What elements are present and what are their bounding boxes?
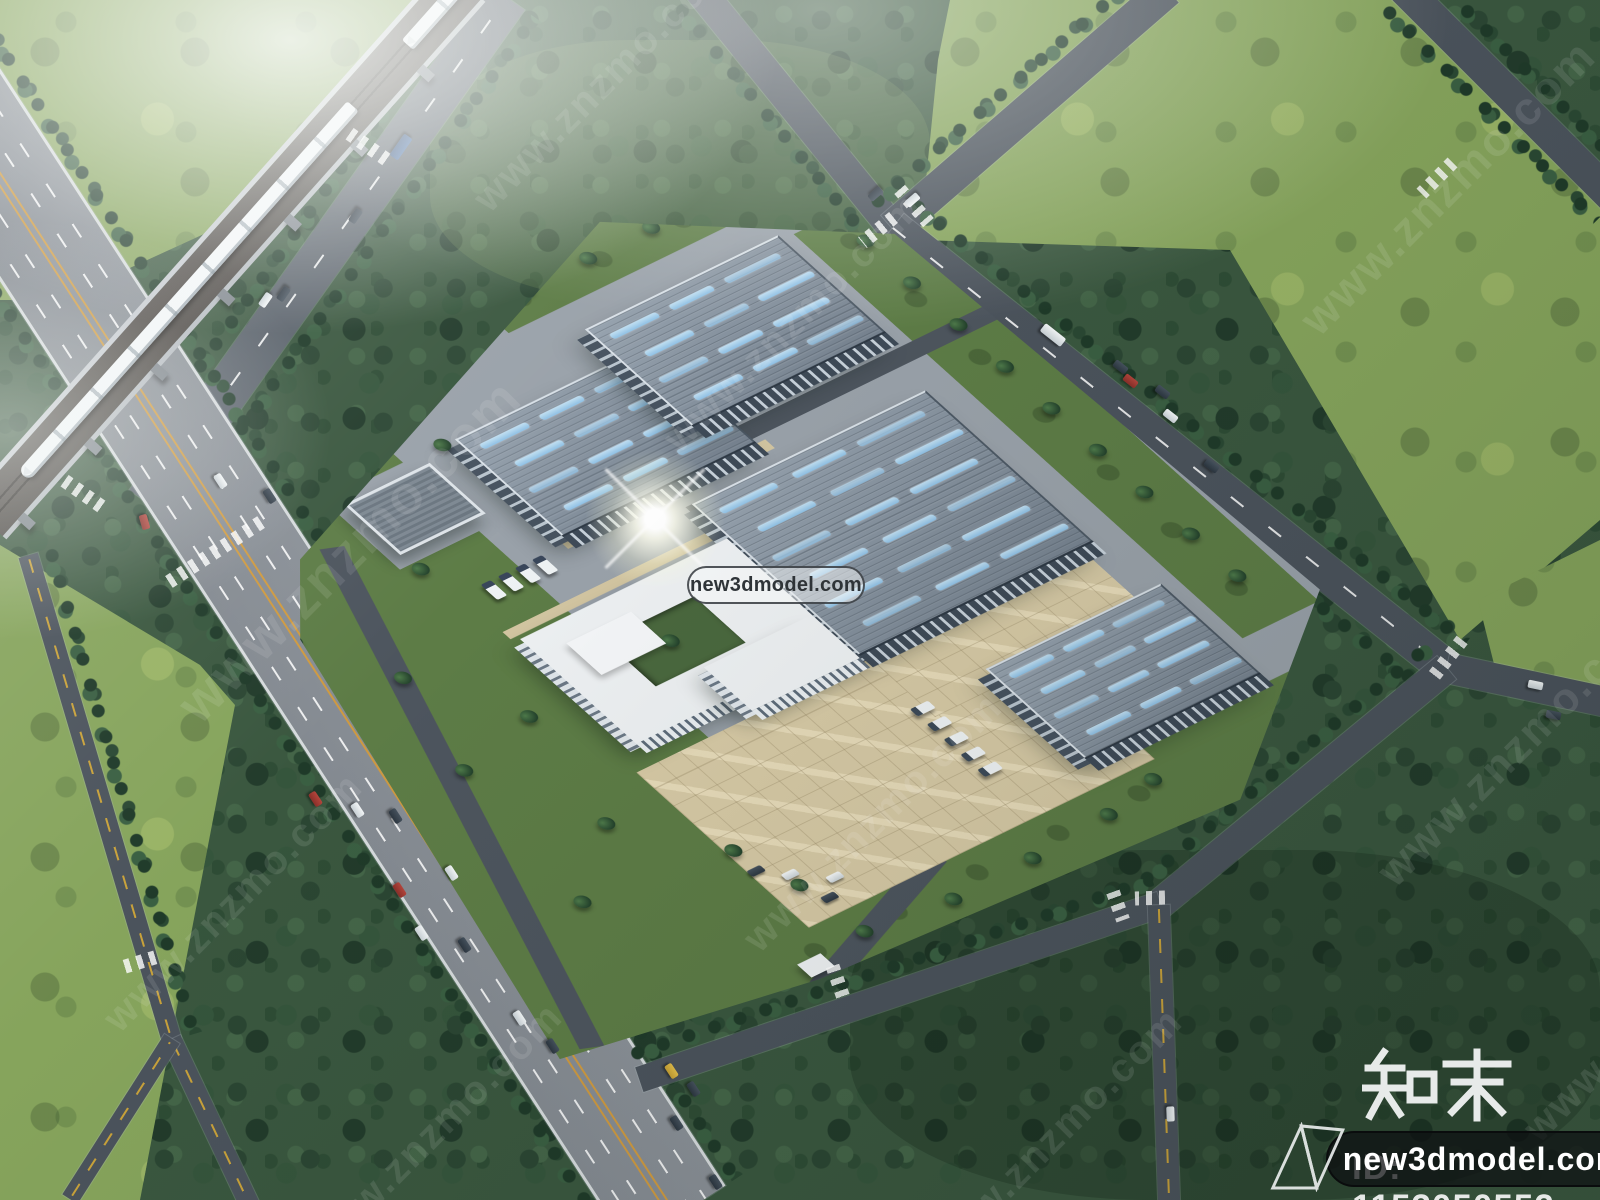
tiled-watermark-text: www.znzmo.com bbox=[165, 367, 533, 735]
tiled-watermark-text: www.znzmo.com bbox=[295, 994, 572, 1200]
tiled-watermark-text: www.znzmo.com bbox=[465, 0, 742, 221]
footer-site-badge: new3dmodel.com bbox=[1326, 1131, 1600, 1187]
tiled-watermark-text: www.znzmo.com bbox=[1515, 874, 1600, 1151]
znzmo-brand-logo bbox=[1362, 1046, 1512, 1126]
tiled-watermark-text: www.znzmo.com bbox=[95, 764, 372, 1041]
footer-site-text: new3dmodel.com bbox=[1343, 1141, 1600, 1178]
tiled-watermark-text: www.znzmo.com bbox=[735, 684, 1012, 961]
tiled-watermark-text: www.znzmo.com bbox=[655, 184, 932, 461]
center-watermark-badge: new3dmodel.com bbox=[687, 566, 865, 604]
center-watermark-text: new3dmodel.com bbox=[690, 574, 862, 597]
tiled-watermark-text: www.znzmo.com bbox=[1368, 593, 1600, 896]
tiled-watermark-text: www.znzmo.com bbox=[915, 999, 1192, 1200]
triangle-logo-icon bbox=[1268, 1122, 1347, 1192]
aerial-render: www.znzmo.comwww.znzmo.comwww.znzmo.comw… bbox=[0, 0, 1600, 1200]
tiled-watermark-text: www.znzmo.com bbox=[1289, 28, 1600, 345]
